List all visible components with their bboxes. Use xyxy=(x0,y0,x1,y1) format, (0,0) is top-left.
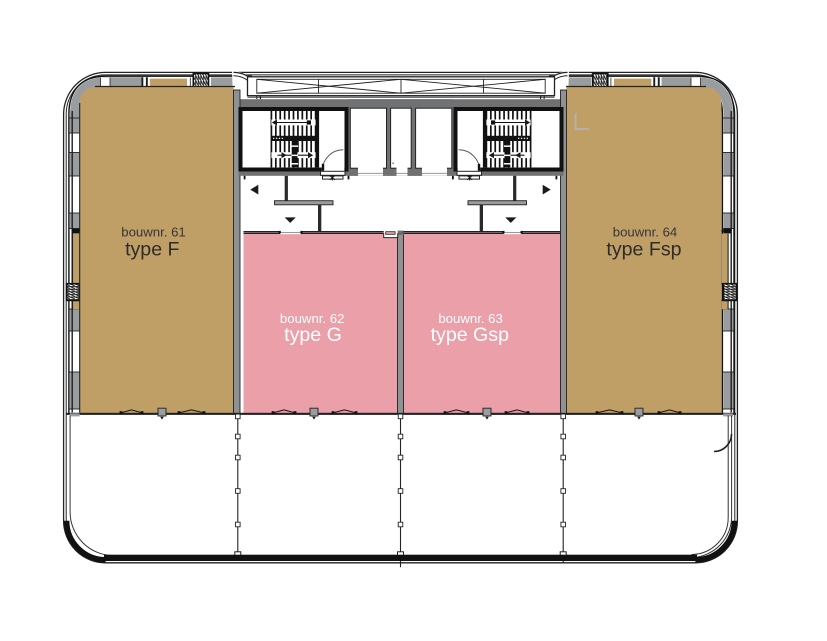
svg-text:type G: type G xyxy=(284,324,342,346)
svg-text:bouwnr. 64: bouwnr. 64 xyxy=(613,225,678,240)
svg-text:type F: type F xyxy=(125,239,179,261)
svg-text:bouwnr. 61: bouwnr. 61 xyxy=(121,225,186,240)
svg-text:type Fsp: type Fsp xyxy=(606,239,681,261)
svg-text:type Gsp: type Gsp xyxy=(431,324,510,346)
